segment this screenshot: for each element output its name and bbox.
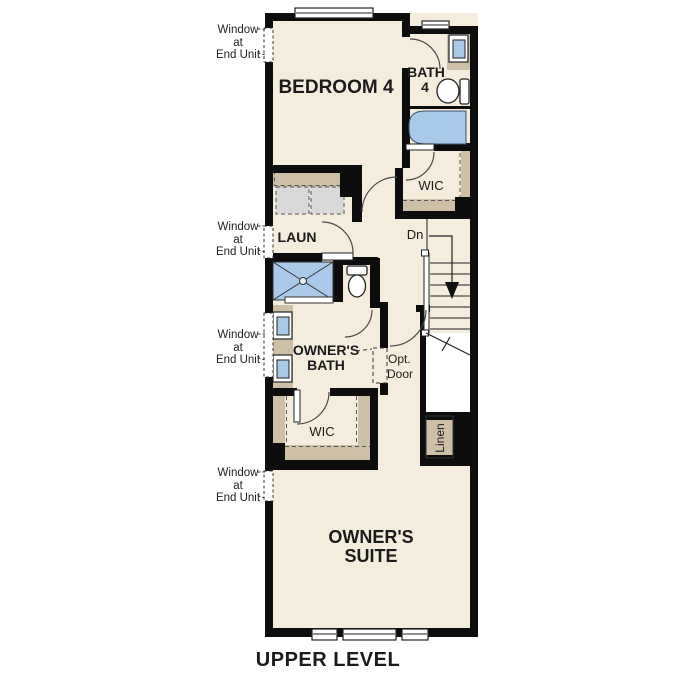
wic-lower-shelf-right	[358, 396, 370, 445]
owners-bath-label-line1: OWNER'S	[293, 342, 359, 358]
laundry-label: LAUN	[278, 229, 317, 245]
stairs-dn-label: Dn	[407, 227, 424, 242]
owners-bath-label-line2: BATH	[307, 357, 345, 373]
owners-suite-label-line1: OWNER'S	[328, 527, 413, 548]
shower-glass-door	[285, 297, 333, 303]
wic-lower-shelf-left	[273, 396, 285, 445]
wic-upper-shelf-right	[461, 151, 470, 197]
opt-door-label-line1: Opt.	[388, 352, 411, 366]
window-note-4: Window at End Unit	[216, 467, 260, 505]
bath4-toilet-tank	[460, 79, 469, 104]
wic-upper-label: WIC	[418, 178, 443, 193]
note-leaders	[258, 29, 265, 498]
bath4-label-line2: 4	[421, 79, 429, 95]
stairwell-opening	[426, 333, 470, 412]
linen-label: Linen	[433, 423, 447, 452]
floorplan-canvas: BEDROOM 4 BATH 4 WIC LAUN Dn OWNER'S BAT…	[0, 0, 687, 687]
bedroom4-label: BEDROOM 4	[278, 77, 393, 99]
wic-lower-shelf-bottom	[273, 445, 370, 460]
window-note-3: Window at End Unit	[216, 329, 260, 367]
owners-toilet	[347, 266, 367, 297]
opt-door-label-line2: Door	[387, 367, 413, 381]
bath4-toilet	[437, 79, 459, 103]
shower	[273, 262, 333, 303]
laundry-counter	[273, 171, 348, 187]
window-note-2: Window at End Unit	[216, 221, 260, 259]
owners-suite-label-line2: SUITE	[344, 546, 397, 567]
window-note-1: Window at End Unit	[216, 24, 260, 62]
bath4-label-line1: BATH	[407, 64, 445, 80]
wic-lower-label: WIC	[309, 424, 334, 439]
plan-title: UPPER LEVEL	[256, 649, 400, 672]
bathtub	[409, 111, 466, 144]
